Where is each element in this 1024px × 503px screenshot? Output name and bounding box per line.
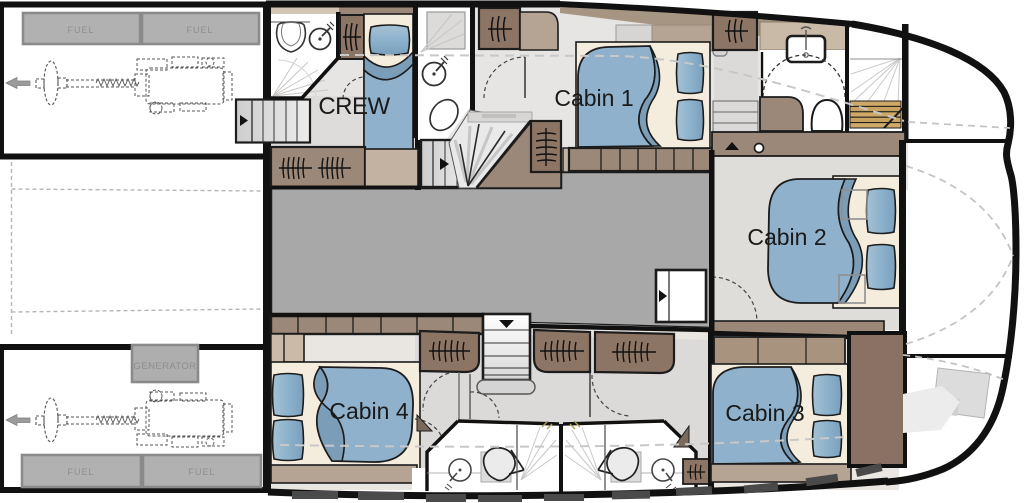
svg-text:Cabin 2: Cabin 2 bbox=[747, 224, 826, 250]
svg-text:FUEL: FUEL bbox=[67, 467, 94, 477]
svg-text:FUEL: FUEL bbox=[67, 25, 94, 35]
svg-text:GENERATOR: GENERATOR bbox=[134, 361, 197, 372]
svg-text:Cabin 3: Cabin 3 bbox=[725, 400, 804, 426]
svg-text:CREW: CREW bbox=[318, 93, 390, 120]
svg-text:Cabin 4: Cabin 4 bbox=[329, 398, 408, 424]
svg-text:Cabin 1: Cabin 1 bbox=[554, 85, 633, 111]
svg-text:FUEL: FUEL bbox=[188, 467, 215, 477]
svg-text:FUEL: FUEL bbox=[186, 25, 213, 35]
